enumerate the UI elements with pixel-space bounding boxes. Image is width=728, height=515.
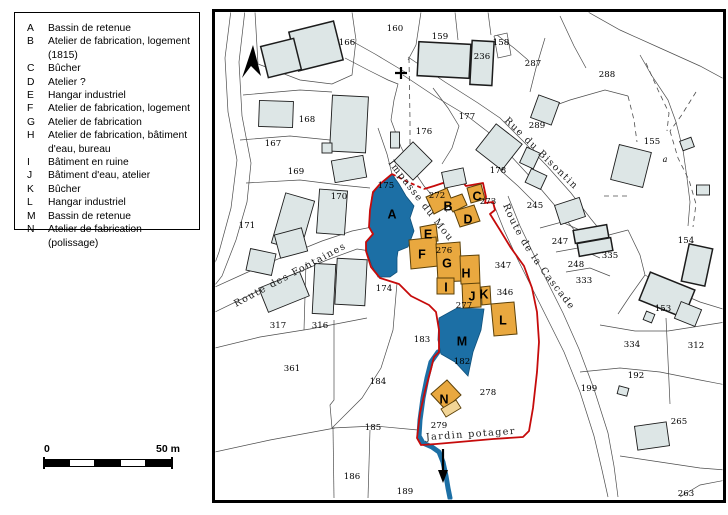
legend-key: G: [27, 116, 48, 129]
legend-key: F: [27, 102, 48, 115]
parcel-number: 184: [370, 377, 387, 387]
legend-label: Hangar industriel: [48, 196, 193, 209]
parcel-number: 170: [331, 192, 347, 202]
parcel-number: 288: [599, 70, 615, 80]
scale-fifty-label: 50 m: [156, 443, 180, 455]
site-plan-figure: Route des FontainesImpasse du MoulinRue …: [0, 0, 728, 515]
gray-building: [697, 185, 710, 195]
building-letter-C: C: [472, 190, 481, 204]
building-letter-A: A: [387, 208, 396, 222]
legend-key: L: [27, 196, 48, 209]
parcel-number: 245: [527, 201, 543, 211]
legend-item: MBassin de retenue: [27, 210, 193, 223]
parcel-number: 178: [490, 166, 506, 176]
parcel-number: 199: [581, 384, 597, 394]
parcel-number: 278: [480, 388, 496, 398]
building-letter-E: E: [424, 228, 432, 242]
parcel-number: 158: [493, 38, 509, 48]
building-letter-G: G: [442, 257, 452, 271]
parcel-number: 247: [552, 237, 568, 247]
legend-label: Hangar industriel: [48, 89, 193, 102]
scale-tick-right: [171, 457, 173, 469]
building-letter-M: M: [457, 335, 467, 349]
parcel-number: 361: [284, 364, 300, 374]
parcel-number: 312: [688, 341, 704, 351]
legend-label: Atelier de fabrication: [48, 116, 193, 129]
map-legend: ABassin de retenueBAtelier de fabricatio…: [14, 12, 200, 230]
parcel-number: 276: [436, 246, 452, 256]
gray-building: [246, 249, 276, 276]
parcel-number: 334: [624, 340, 641, 350]
legend-item: JBâtiment d'eau, atelier: [27, 169, 193, 182]
legend-key: K: [27, 183, 48, 196]
parcel-number: 167: [265, 139, 281, 149]
parcel-number: 175: [378, 181, 394, 191]
legend-label: Atelier de fabrication (polissage): [48, 223, 193, 250]
legend-item: BAtelier de fabrication, logement (1815): [27, 35, 193, 62]
parcel-number: 248: [568, 260, 584, 270]
parcel-number: 182: [454, 357, 470, 367]
parcel-number: 186: [344, 472, 360, 482]
legend-key: N: [27, 223, 48, 250]
building-letter-B: B: [443, 200, 452, 214]
legend-item: KBûcher: [27, 183, 193, 196]
scale-tick-left: [43, 457, 45, 469]
legend-item: HAtelier de fabrication, bâtiment d'eau,…: [27, 129, 193, 156]
building-letter-N: N: [439, 393, 448, 407]
parcel-number: 171: [239, 221, 255, 231]
legend-label: Bassin de retenue: [48, 22, 193, 35]
gray-building: [470, 40, 494, 85]
parcel-number: 169: [288, 167, 304, 177]
parcel-number: 189: [397, 487, 413, 497]
gray-building: [312, 263, 336, 314]
parcel-number: 265: [671, 417, 687, 427]
legend-label: Bâtiment d'eau, atelier: [48, 169, 193, 182]
legend-item: ABassin de retenue: [27, 22, 193, 35]
parcel-number: 316: [312, 321, 328, 331]
legend-label: Bâtiment en ruine: [48, 156, 193, 169]
parcel-number: 185: [365, 423, 381, 433]
parcel-number: 263: [678, 489, 694, 499]
parcel-number: 177: [459, 112, 475, 122]
legend-item: EHangar industriel: [27, 89, 193, 102]
parcel-number: 159: [432, 32, 448, 42]
gray-building: [391, 132, 400, 148]
scale-zero-label: 0: [44, 443, 50, 455]
parcel-number: 289: [529, 121, 545, 131]
legend-list: ABassin de retenueBAtelier de fabricatio…: [27, 22, 193, 250]
building-letter-L: L: [499, 314, 507, 328]
legend-item: LHangar industriel: [27, 196, 193, 209]
legend-key: D: [27, 76, 48, 89]
legend-label: Bûcher: [48, 183, 193, 196]
legend-item: IBâtiment en ruine: [27, 156, 193, 169]
parcel-number: 155: [644, 137, 660, 147]
parcel-number: 154: [678, 236, 695, 246]
legend-label: Atelier ?: [48, 76, 193, 89]
parcel-number: 183: [414, 335, 430, 345]
gray-building: [322, 143, 332, 153]
parcel-number: 346: [497, 288, 513, 298]
gray-building: [330, 95, 369, 153]
parcel-number: 166: [339, 38, 355, 48]
legend-key: A: [27, 22, 48, 35]
legend-key: E: [27, 89, 48, 102]
legend-key: M: [27, 210, 48, 223]
gray-building: [417, 42, 471, 79]
building-letter-F: F: [418, 248, 426, 262]
gray-building: [634, 422, 669, 450]
legend-key: C: [27, 62, 48, 75]
scale-bar: 0 50 m: [44, 443, 184, 473]
parcel-number: 273: [480, 197, 496, 207]
parcel-number: 153: [655, 304, 671, 314]
legend-label: Atelier de fabrication, logement: [48, 102, 193, 115]
gray-building: [259, 100, 294, 127]
parcel-number: 160: [387, 24, 403, 34]
legend-label: Bassin de retenue: [48, 210, 193, 223]
parcel-number: 317: [270, 321, 286, 331]
parcel-number: 335: [602, 251, 618, 261]
building-letter-J: J: [469, 290, 476, 304]
legend-key: B: [27, 35, 48, 62]
building-letter-H: H: [461, 267, 470, 281]
legend-key: H: [27, 129, 48, 156]
building-letter-I: I: [444, 281, 447, 295]
scale-bar-graphic: [44, 459, 172, 467]
parcel-number: 236: [474, 52, 490, 62]
legend-item: GAtelier de fabrication: [27, 116, 193, 129]
legend-label: Atelier de fabrication, logement (1815): [48, 35, 193, 62]
parcel-number: 176: [416, 127, 432, 137]
legend-item: CBûcher: [27, 62, 193, 75]
building-letter-K: K: [479, 288, 488, 302]
legend-item: FAtelier de fabrication, logement: [27, 102, 193, 115]
building-letter-D: D: [463, 213, 472, 227]
parcel-number: 168: [299, 115, 315, 125]
parcel-number: 279: [431, 421, 447, 431]
legend-key: J: [27, 169, 48, 182]
legend-item: NAtelier de fabrication (polissage): [27, 223, 193, 250]
legend-label: Atelier de fabrication, bâtiment d'eau, …: [48, 129, 193, 156]
parcel-number: 174: [376, 284, 393, 294]
scale-bar-labels: 0 50 m: [44, 443, 184, 456]
parcel-number: 347: [495, 261, 511, 271]
parcel-number: a: [663, 155, 668, 164]
legend-item: DAtelier ?: [27, 76, 193, 89]
legend-key: I: [27, 156, 48, 169]
parcel-number: 192: [628, 371, 644, 381]
legend-label: Bûcher: [48, 62, 193, 75]
parcel-number: 287: [525, 59, 541, 69]
gray-building: [335, 258, 367, 306]
parcel-number: 333: [576, 276, 592, 286]
